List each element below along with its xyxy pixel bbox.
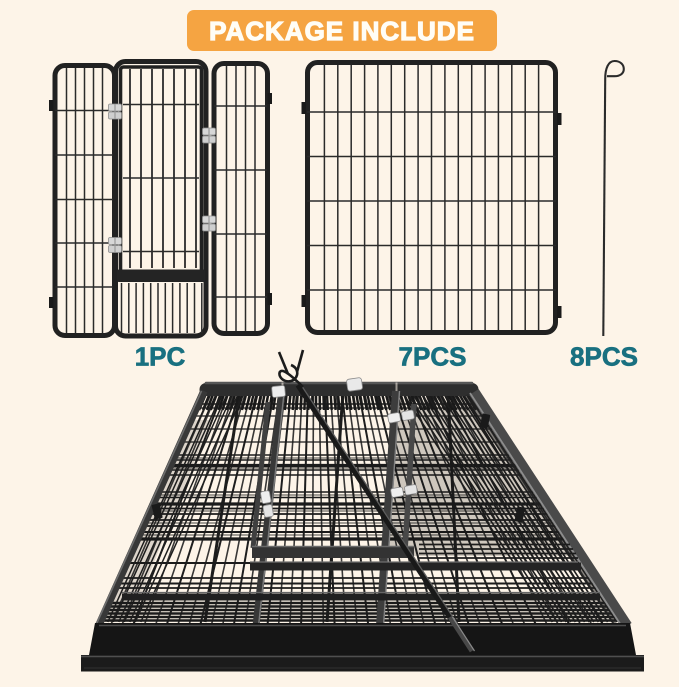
svg-text:PACKAGE INCLUDE: PACKAGE INCLUDE (209, 16, 475, 46)
svg-text:1PC: 1PC (135, 342, 186, 372)
svg-text:8PCS: 8PCS (570, 342, 638, 372)
svg-text:7PCS: 7PCS (399, 342, 467, 372)
